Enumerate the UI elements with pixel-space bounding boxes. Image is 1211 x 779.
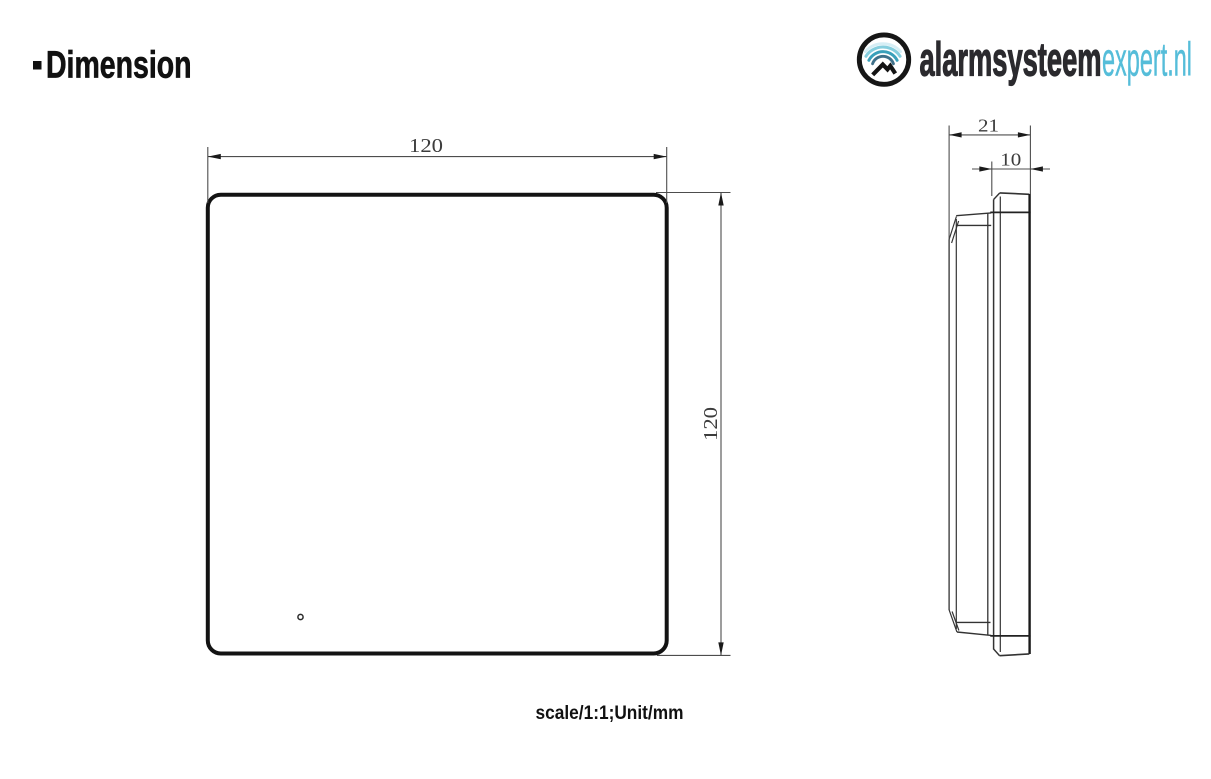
svg-text:Dimension: Dimension xyxy=(46,45,192,87)
svg-text:120: 120 xyxy=(701,407,722,441)
svg-text:10: 10 xyxy=(1000,150,1021,170)
svg-text:120: 120 xyxy=(409,136,443,157)
svg-text:21: 21 xyxy=(978,116,999,136)
svg-text:scale/1:1;Unit/mm: scale/1:1;Unit/mm xyxy=(536,703,684,724)
svg-text:alarmsysteem: alarmsysteem xyxy=(920,33,1102,86)
svg-text:expert.nl: expert.nl xyxy=(1102,33,1192,86)
